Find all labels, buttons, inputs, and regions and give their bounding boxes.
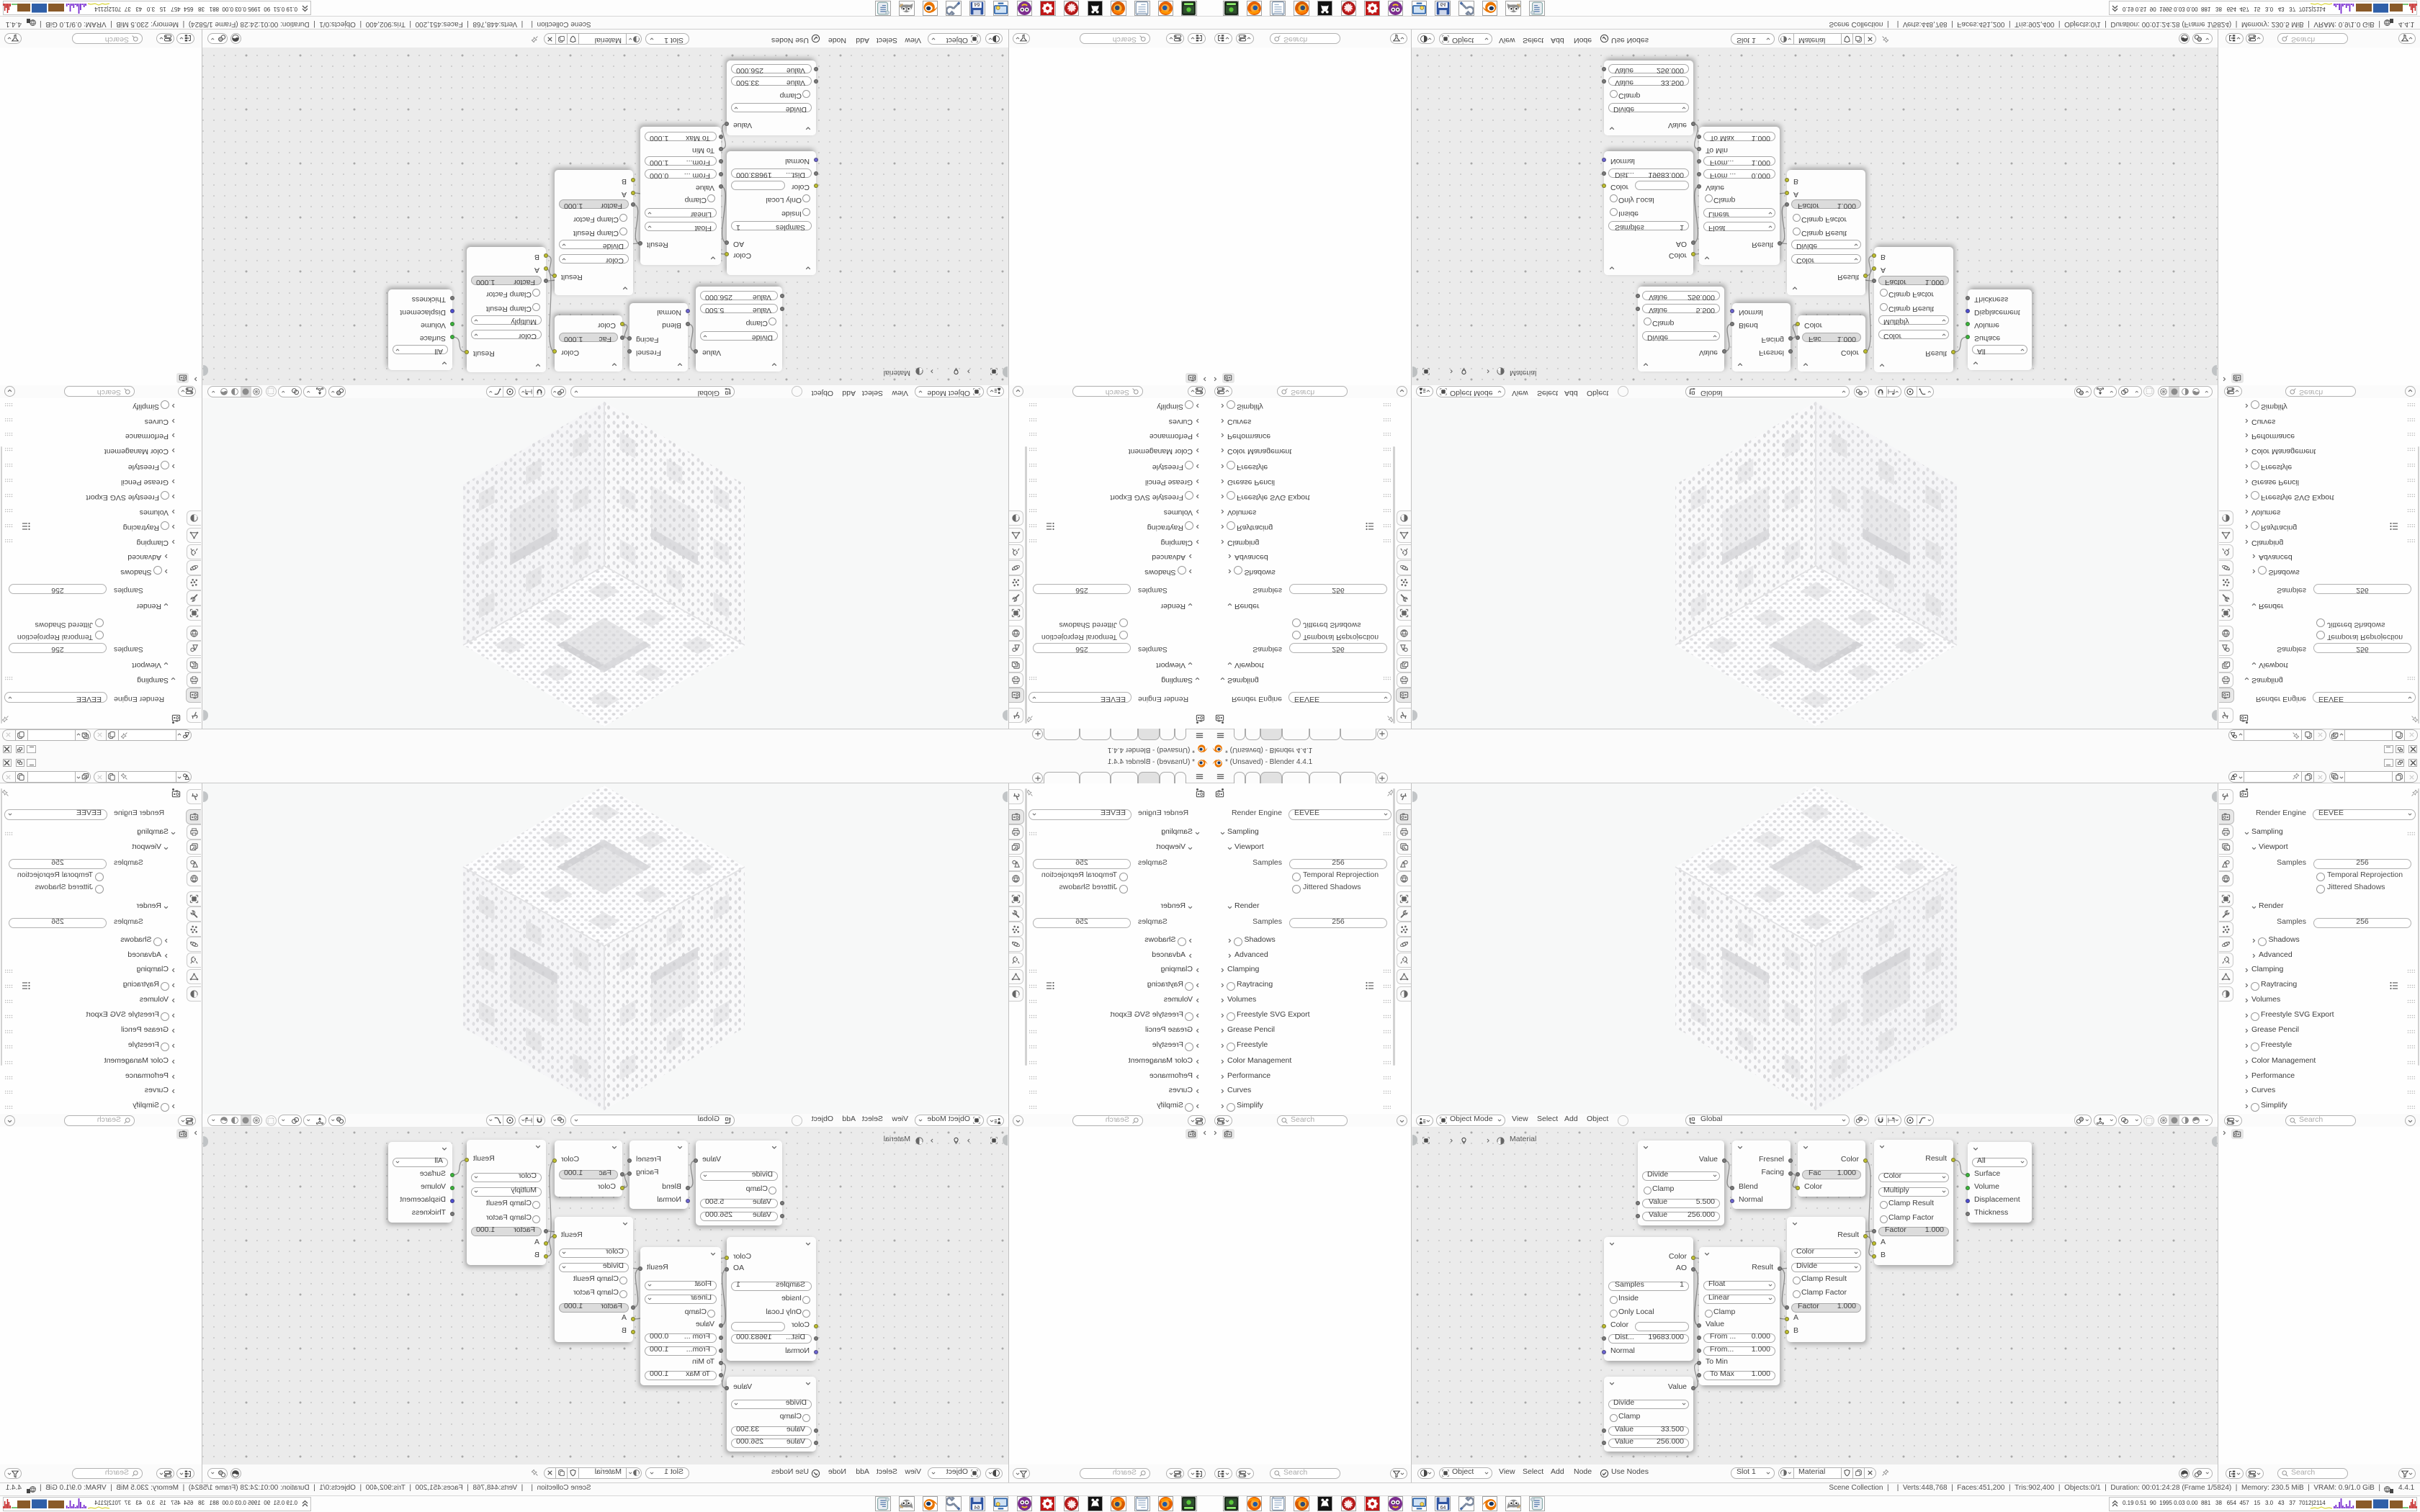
svg-text:64: 64	[1440, 1506, 1446, 1511]
svg-text:64: 64	[974, 1506, 980, 1511]
svg-text:64: 64	[1440, 1, 1446, 6]
svg-text:64: 64	[974, 1, 980, 6]
